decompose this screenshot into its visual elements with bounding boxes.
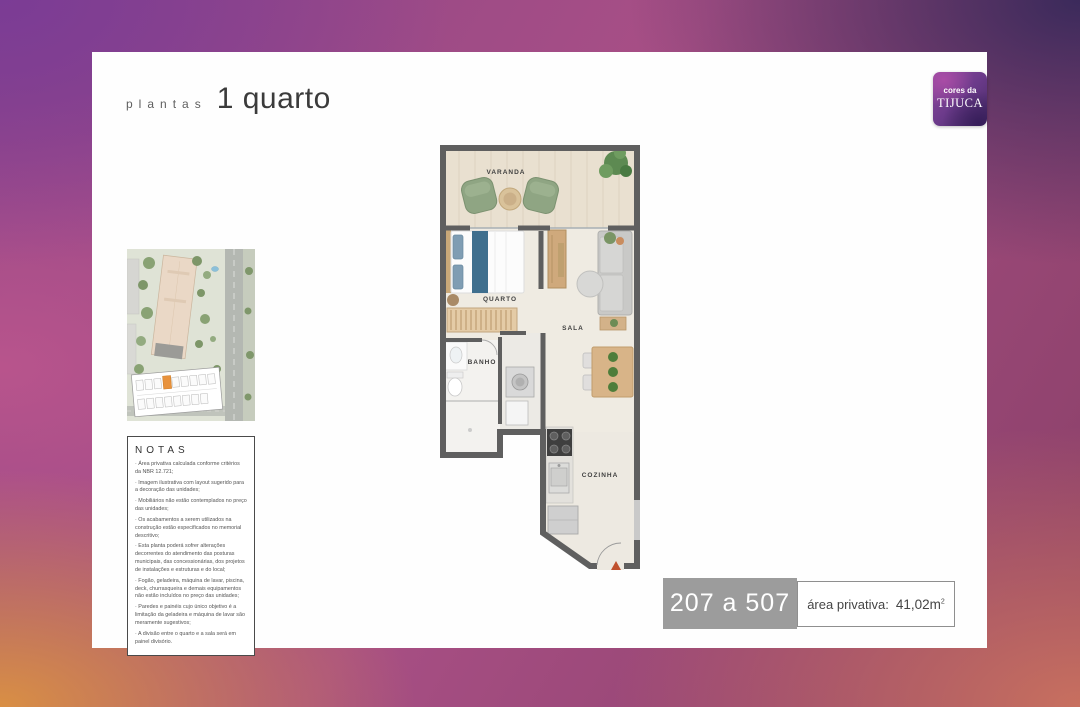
units-badge: 207 a 507	[663, 578, 797, 629]
water-heater	[506, 401, 528, 425]
note-item: · Os acabamentos a serem utilizados na c…	[135, 517, 247, 540]
brand-logo-line1: cores da	[944, 87, 977, 96]
label-varanda: VARANDA	[486, 169, 525, 176]
bed	[446, 229, 524, 293]
neighbor-building	[127, 259, 139, 314]
area-superscript: 2	[941, 598, 945, 605]
title-main: 1 quarto	[217, 82, 331, 116]
pool	[212, 267, 219, 272]
note-item: · A divisão entre o quarto e a sala será…	[135, 631, 247, 647]
area-value: 41,02m2	[896, 597, 945, 612]
fridge	[548, 506, 578, 534]
site-map-thumbnail	[127, 249, 255, 421]
tv-console	[548, 230, 566, 288]
floor-plan: VARANDA QUARTO SALA BANHO COZINHA	[440, 143, 640, 573]
washing-machine	[506, 367, 534, 397]
neighbor-building-2	[127, 324, 136, 374]
note-item: · Imagem ilustrativa com layout sugerido…	[135, 480, 247, 496]
brand-logo-line2: TIJUCA	[937, 96, 983, 110]
notes-box: NOTAS · Área privativa calculada conform…	[127, 436, 255, 656]
bathroom-sink	[445, 342, 467, 370]
sofa-side-table	[600, 317, 626, 330]
wardrobe	[447, 308, 517, 332]
label-cozinha: COZINHA	[582, 472, 619, 479]
note-item: · Mobiliários não estão contemplados no …	[135, 498, 247, 514]
note-item: · Esta planta poderá sofrer alterações d…	[135, 543, 247, 574]
side-table	[499, 188, 521, 210]
label-quarto: QUARTO	[483, 296, 517, 303]
area-label: área privativa:	[807, 597, 889, 612]
page-title: plantas 1 quarto	[126, 82, 331, 116]
brand-logo: cores da TIJUCA	[933, 72, 987, 126]
label-banho: BANHO	[468, 359, 497, 366]
kitchen-sink	[549, 463, 569, 493]
note-item: · Área privativa calculada conforme crit…	[135, 461, 247, 477]
brochure-card: plantas 1 quarto cores da TIJUCA	[92, 52, 987, 648]
page-background: plantas 1 quarto cores da TIJUCA	[0, 0, 1080, 707]
note-item: · Paredes e painéis cujo único objetivo …	[135, 604, 247, 627]
floor-key-plan	[131, 367, 222, 417]
sofa	[598, 231, 632, 315]
notes-title: NOTAS	[135, 445, 247, 456]
toilet	[447, 372, 463, 396]
highlighted-unit	[163, 376, 172, 390]
stove	[547, 429, 572, 456]
title-prefix: plantas	[126, 97, 207, 111]
area-badge: área privativa: 41,02m2	[797, 581, 955, 627]
bedside-rug	[447, 294, 459, 306]
note-item: · Fogão, geladeira, máquina de lavar, pi…	[135, 578, 247, 601]
kitchen-window	[634, 500, 640, 540]
pouf	[577, 271, 603, 297]
label-sala: SALA	[562, 325, 584, 332]
